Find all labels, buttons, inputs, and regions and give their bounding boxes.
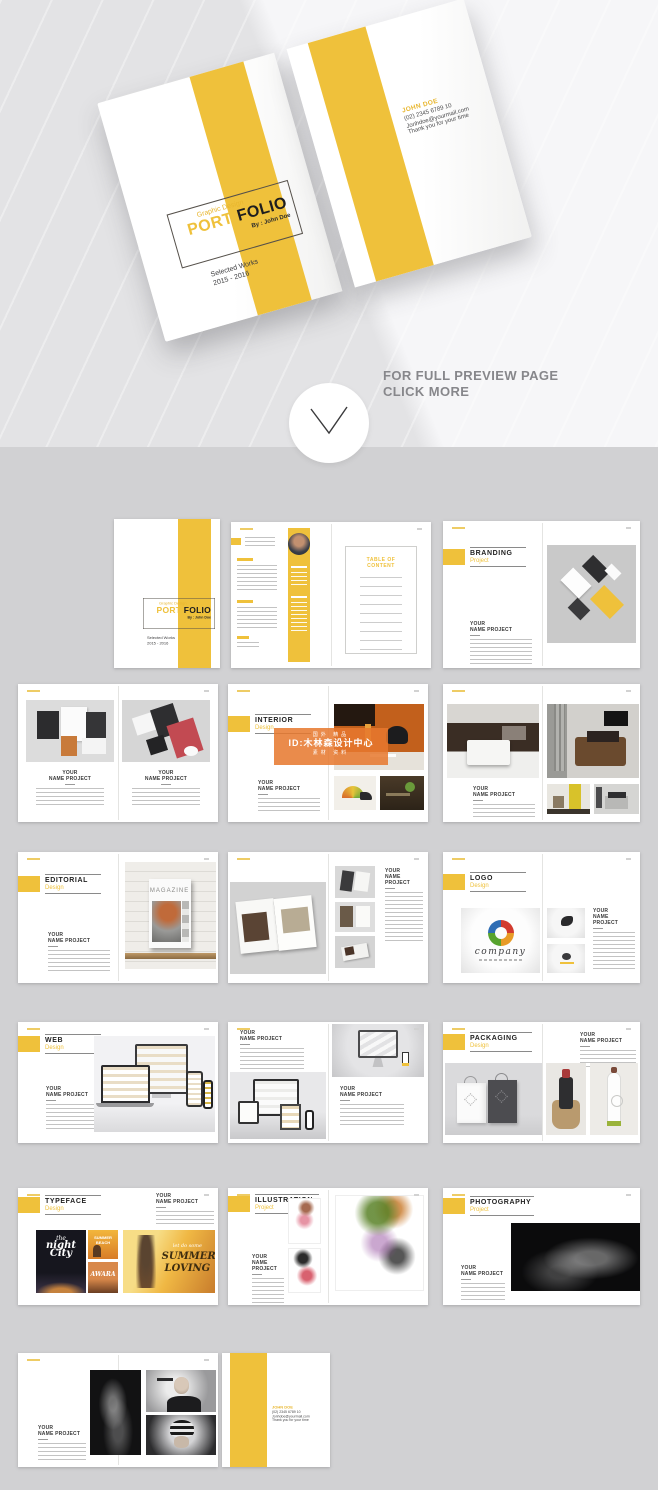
heading-text-wrap: WEB Design — [45, 1034, 101, 1054]
magazine-sidebar — [182, 901, 189, 942]
mini-cover-title-box: Graphic Design PORT FOLIO By : John Doe — [143, 598, 215, 629]
heading-text-wrap: BRANDING Project — [470, 547, 526, 567]
photo-bw-man-gun — [146, 1370, 216, 1412]
np-line2: NAME PROJECT — [132, 776, 200, 782]
section-subtitle: Project — [470, 558, 526, 564]
np-divider — [593, 928, 603, 929]
photo-bedroom-dark — [447, 704, 539, 778]
preview-line1: FOR FULL PREVIEW PAGE — [383, 368, 558, 383]
spread-fold — [328, 1024, 329, 1141]
photo-shape — [93, 1245, 101, 1257]
section-subtitle: Design — [470, 1043, 532, 1049]
photo-shape — [605, 796, 628, 809]
phone-shape — [203, 1080, 213, 1109]
np-line2: NAME PROJECT — [252, 1260, 284, 1272]
np-divider — [580, 1046, 590, 1047]
section-title: PHOTOGRAPHY — [470, 1199, 534, 1206]
resume-section-head-3 — [237, 636, 249, 639]
photo-shape — [568, 598, 591, 621]
spread-fold — [331, 524, 332, 666]
hiker-silhouette-shape — [136, 1235, 156, 1288]
imac-screen-shape — [358, 1030, 398, 1058]
np-divider — [65, 784, 75, 785]
thumb-typeface-spread: TYPEFACE Design YOUR NAME PROJECT the ni… — [18, 1188, 218, 1305]
heading-text-wrap: LOGO Design — [470, 872, 526, 892]
photo-shape — [242, 912, 270, 942]
mini-cover-works1: Selected Works — [147, 636, 175, 641]
mini-cover-port: PORT — [157, 606, 182, 616]
magazine-cover: MAGAZINE — [149, 879, 191, 947]
photo-shape — [402, 1063, 409, 1066]
heading-yellow-tab — [18, 876, 40, 892]
thumb-interior-spread: INTERIOR Design YOUR NAME PROJECT 国外 精品 … — [228, 684, 428, 822]
photo-shape — [405, 782, 415, 792]
np-line2: NAME PROJECT — [258, 786, 320, 792]
photo-company-logo: company — [461, 908, 540, 973]
photo-shape — [174, 1436, 189, 1448]
chevron-down-icon — [289, 383, 369, 463]
browser-card-shape — [280, 1104, 301, 1129]
section-title: INTERIOR — [255, 717, 311, 724]
photo-shape — [467, 740, 509, 765]
spread-fold — [542, 854, 543, 981]
np-line2: NAME PROJECT — [156, 1199, 214, 1205]
resume-text-lines-1 — [237, 565, 277, 593]
photo-branding-stationery — [547, 545, 636, 643]
photo-bottle — [590, 1063, 638, 1135]
photo-shape — [61, 736, 77, 756]
photo-magazine-on-shelf: MAGAZINE — [125, 862, 216, 969]
toc-item-lines — [360, 577, 402, 651]
imac-stand-shape — [372, 1058, 383, 1068]
photo-open-catalog — [230, 882, 326, 974]
photo-shape — [354, 871, 370, 891]
section-subtitle: Design — [45, 1206, 101, 1212]
section-subtitle: Design — [470, 883, 526, 889]
laptop-screen-shape — [101, 1065, 149, 1103]
photo-jar-burlap — [546, 1063, 586, 1135]
photo-bedroom-gray — [594, 784, 639, 814]
name-project-block: YOUR NAME PROJECT — [240, 1030, 304, 1072]
photo-shape — [562, 953, 571, 960]
illustration-small-2 — [288, 1248, 321, 1293]
resume-section-head-1 — [237, 558, 253, 561]
mini-back-art: JOHN DOE (02) 2345 6789 10 Jonhdoe@yourm… — [222, 1353, 330, 1467]
heading-yellow-tab — [18, 1036, 40, 1052]
name-project-block: YOUR NAME PROJECT — [258, 780, 320, 814]
bottle-base-shape — [607, 1121, 620, 1126]
photo-shape — [386, 793, 410, 796]
photo-shape — [340, 906, 354, 927]
photo-shape — [174, 1377, 189, 1394]
photo-shape — [502, 726, 526, 739]
np-line2: NAME PROJECT — [240, 1036, 304, 1042]
mini-back-contact: JOHN DOE (02) 2345 6789 10 Jonhdoe@yourm… — [272, 1405, 326, 1422]
photo-logo-small-2 — [547, 944, 585, 973]
heading-text-wrap: EDITORIAL Design — [45, 874, 101, 894]
np-paragraph — [258, 798, 320, 814]
mini-cover-works2: 2015 - 2016 — [147, 641, 168, 646]
resume-name-lines — [245, 537, 275, 547]
photo-shape — [604, 563, 621, 580]
section-subtitle: Design — [45, 885, 101, 891]
name-project-block: YOUR NAME PROJECT — [38, 1425, 86, 1463]
jar-lid-shape — [562, 1069, 570, 1078]
phone-shape — [305, 1110, 314, 1130]
magazine-title: MAGAZINE — [149, 888, 191, 894]
name-project-block: YOUR NAME PROJECT — [340, 1086, 404, 1128]
np-paragraph — [48, 950, 110, 972]
photo-bw-silhouette — [90, 1370, 141, 1455]
mini-cover-byline: By : John Doe — [147, 616, 211, 620]
avatar — [288, 533, 310, 555]
photo-shape — [608, 792, 626, 797]
watermark-bottom: 素材 资料 — [274, 749, 388, 756]
np-paragraph — [240, 1048, 304, 1072]
illustration-small-1 — [288, 1198, 321, 1244]
np-divider — [48, 946, 58, 947]
heading-yellow-tab — [443, 549, 465, 565]
photo-shape — [157, 1378, 172, 1381]
mini-back-stripe — [230, 1353, 267, 1467]
thumb-editorial-mockups-spread: YOUR NAME PROJECT — [228, 852, 428, 983]
thumb-editorial-spread: EDITORIAL Design YOUR NAME PROJECT MAGAZ… — [18, 852, 218, 983]
np-line2: NAME PROJECT — [461, 1271, 505, 1277]
thumb-back-cover-page: JOHN DOE (02) 2345 6789 10 Jonhdoe@yourm… — [222, 1353, 330, 1467]
toc-title: TABLE OF CONTENT — [358, 557, 404, 569]
np-line2: NAME PROJECT — [36, 776, 104, 782]
stripe-heading-1 — [291, 566, 307, 568]
resume-text-lines-2 — [237, 607, 277, 631]
np-paragraph — [385, 892, 423, 944]
heading-yellow-tab — [443, 874, 465, 890]
photo-brochure-small-2 — [335, 902, 375, 932]
np-line2: NAME PROJECT — [385, 874, 423, 886]
bottle-logo-shape — [611, 1095, 623, 1107]
np-paragraph — [38, 1443, 86, 1463]
heading-yellow-tab — [443, 1198, 465, 1214]
spread-fold — [328, 1190, 329, 1303]
watermark-top: 国外 精品 — [274, 731, 388, 738]
hero-marble-scene: Graphic Design PORT FOLIO By : John Doe … — [0, 0, 658, 447]
np-line2: NAME PROJECT — [48, 938, 110, 944]
photo-shape — [560, 568, 591, 599]
heading-yellow-tab — [228, 1196, 250, 1212]
watermark-id: ID:木林森设计中心 — [274, 738, 388, 749]
photo-bw-figure — [511, 1223, 640, 1291]
laptop-base-shape — [96, 1103, 154, 1107]
section-subtitle: Project — [470, 1207, 534, 1213]
np-divider — [38, 1439, 48, 1440]
thumb-packaging-spread: PACKAGING Design YOUR NAME PROJECT — [443, 1022, 640, 1143]
mini-cover-works: Selected Works 2015 - 2016 — [147, 635, 175, 646]
monitor-stand-shape — [152, 1094, 171, 1099]
photo-shape — [386, 726, 408, 744]
photo-shape — [345, 946, 355, 956]
np-line2: NAME PROJECT — [473, 792, 535, 798]
np-paragraph — [461, 1283, 505, 1301]
thumb-interior-bedrooms-spread: YOUR NAME PROJECT — [443, 684, 640, 822]
poster-awara-text: AWARA — [88, 1271, 118, 1278]
summer-kicker-text: let do some — [163, 1243, 211, 1249]
section-title: EDITORIAL — [45, 877, 101, 884]
portfolio-template-preview: { "hero": { "preview": { "line1": "FOR F… — [0, 0, 658, 1490]
photo-shape — [281, 906, 310, 933]
photo-stationery-red — [122, 700, 210, 762]
np-paragraph — [252, 1278, 284, 1304]
np-divider — [340, 1100, 350, 1101]
photo-responsive-devices — [94, 1036, 215, 1132]
np-paragraph — [132, 788, 200, 806]
company-tagline-lines — [479, 959, 523, 961]
jar-shape — [559, 1077, 573, 1109]
photo-shape — [587, 731, 618, 743]
np-paragraph — [156, 1211, 214, 1227]
heading-text-wrap: TYPEFACE Design — [45, 1195, 101, 1215]
photo-shape — [554, 704, 565, 771]
photo-room-yellow — [547, 784, 590, 814]
photo-bedroom-brown — [547, 704, 639, 778]
np-line2: NAME PROJECT — [580, 1038, 636, 1044]
thumb-web-mockups-spread: YOUR NAME PROJECT YOUR NAME PROJECT — [228, 1022, 428, 1143]
stripe-lines-1 — [291, 572, 307, 588]
np-divider — [461, 1279, 471, 1280]
np-divider — [470, 635, 480, 636]
np-paragraph — [340, 1104, 404, 1128]
photo-shape — [360, 792, 372, 800]
section-subtitle: Design — [45, 1045, 101, 1051]
photo-interior-fan-chair — [334, 776, 376, 810]
photo-shape — [170, 1420, 194, 1437]
heading-yellow-tab — [18, 1197, 40, 1213]
np-divider — [385, 888, 395, 889]
brochure-mockup: Graphic Design PORT FOLIO By : John Doe … — [97, 0, 533, 342]
resume-name-tab — [231, 538, 241, 545]
spread-fold — [542, 686, 543, 820]
photo-shape — [561, 916, 573, 926]
name-project-block: YOUR NAME PROJECT — [461, 1265, 505, 1301]
np-paragraph — [473, 804, 535, 820]
company-wordmark: company — [461, 947, 540, 957]
photo-imac — [332, 1024, 424, 1077]
watermark-overlay: 国外 精品 ID:木林森设计中心 素材 资料 — [274, 728, 388, 765]
heading-text-wrap: PACKAGING Design — [470, 1032, 532, 1052]
photo-web-devices-2 — [230, 1072, 326, 1139]
back-contact-block: JOHN DOE (02) 2345 6789 10 Jonhdoe@yourm… — [401, 85, 490, 136]
section-title: BRANDING — [470, 550, 526, 557]
contact-name: JOHN DOE — [272, 1405, 326, 1410]
poster-summer-beach: SUMMER BEACH — [88, 1230, 118, 1259]
thumb-resume-toc-spread: TABLE OF CONTENT — [231, 522, 431, 668]
np-divider — [258, 794, 268, 795]
name-project-block: YOUR NAME PROJECT — [156, 1193, 214, 1227]
photo-shape — [167, 1396, 201, 1412]
thumb-photography-spread: PHOTOGRAPHY Project YOUR NAME PROJECT — [443, 1188, 640, 1305]
thumb-branding-mockups-spread: YOUR NAME PROJECT YOUR NAME PROJECT — [18, 684, 218, 822]
thumb-branding-spread: BRANDING Project YOUR NAME PROJECT — [443, 521, 640, 668]
summer-title-text: SUMMER LOVING — [162, 1251, 214, 1275]
resume-section-head-2 — [237, 600, 253, 603]
thumb-cover-page: Graphic Design PORT FOLIO By : John Doe … — [114, 519, 220, 668]
tablet-shape — [186, 1071, 203, 1107]
np-line2: NAME PROJECT — [340, 1092, 404, 1098]
night-city: City — [50, 1248, 72, 1259]
name-project-block: YOUR NAME PROJECT — [473, 786, 535, 820]
np-divider — [473, 800, 483, 801]
np-line2: NAME PROJECT — [470, 627, 532, 633]
preview-line2: CLICK MORE — [383, 384, 469, 399]
np-divider — [240, 1044, 250, 1045]
spread-fold — [118, 686, 119, 820]
bottle-cap-shape — [611, 1067, 618, 1073]
photo-shape — [184, 746, 198, 756]
heading-yellow-tab — [443, 1034, 465, 1050]
mini-cover-folio: FOLIO — [184, 606, 211, 616]
photo-shape — [36, 1282, 86, 1293]
toc-box: TABLE OF CONTENT — [345, 546, 417, 654]
np-divider — [252, 1274, 262, 1275]
photo-stationery-orange — [26, 700, 114, 762]
section-title: WEB — [45, 1037, 101, 1044]
spread-fold — [542, 523, 543, 666]
stripe-heading-2 — [291, 596, 307, 598]
poster-awara: AWARA — [88, 1262, 118, 1293]
magazine-photo — [152, 901, 180, 942]
illustration-large — [335, 1195, 424, 1291]
photo-bw-striped-hat — [146, 1415, 216, 1455]
tablet-shape — [238, 1101, 259, 1124]
contact-phone: (02) 2345 6789 10 — [272, 1411, 326, 1415]
pinwheel-center — [495, 927, 507, 939]
stripe-lines-2 — [291, 602, 307, 634]
photo-shape — [590, 585, 624, 619]
photo-shape — [82, 738, 106, 754]
np-paragraph — [470, 639, 532, 665]
photo-logo-small-1 — [547, 908, 585, 938]
mini-cover-title: PORT FOLIO — [147, 606, 211, 616]
poster-beach-text: SUMMER BEACH — [88, 1235, 118, 1245]
name-project-block: YOUR NAME PROJECT — [470, 621, 532, 665]
photo-shape — [340, 870, 355, 892]
caption-name-project: YOUR NAME PROJECT — [132, 770, 200, 806]
thumb-illustration-spread: ILLUSTRATION Project YOUR NAME PROJECT — [228, 1188, 428, 1305]
photo-shape — [146, 735, 168, 756]
np-divider — [156, 1207, 166, 1208]
contact-thanks: Thank you for your time — [272, 1419, 326, 1423]
np-divider — [46, 1100, 56, 1101]
photo-shape — [569, 784, 580, 809]
photo-brochure-small-1 — [335, 866, 375, 898]
mini-cover-art: Graphic Design PORT FOLIO By : John Doe … — [114, 519, 220, 668]
photo-interior-shelf — [380, 776, 424, 810]
photo-shopping-bags — [445, 1063, 542, 1135]
photo-brochure-small-3 — [335, 936, 375, 968]
photo-shape — [37, 711, 59, 739]
poster-night-city: the night City — [36, 1230, 86, 1293]
poster-night-text: the night City — [40, 1235, 82, 1258]
heading-text-wrap: PHOTOGRAPHY Project — [470, 1196, 534, 1216]
resume-text-lines-3 — [237, 642, 259, 649]
thumb-bw-photos-spread: YOUR NAME PROJECT — [18, 1353, 218, 1467]
summer-line1: SUMMER — [162, 1251, 215, 1262]
summer-line2: LOVING — [165, 1263, 211, 1274]
np-line2: NAME PROJECT — [38, 1431, 86, 1437]
photo-shape — [356, 906, 370, 927]
section-title: LOGO — [470, 875, 526, 882]
mini-cover-stripe — [178, 519, 211, 668]
shelf-shape — [125, 953, 216, 959]
photo-shape — [604, 711, 628, 726]
np-line2: NAME PROJECT — [593, 914, 635, 926]
preview-call-to-action: FOR FULL PREVIEW PAGE CLICK MORE — [383, 368, 558, 400]
section-title: TYPEFACE — [45, 1198, 101, 1205]
photo-shape — [560, 962, 574, 964]
thumb-web-spread: WEB Design YOUR NAME PROJECT — [18, 1022, 218, 1143]
photo-shape — [553, 796, 564, 808]
np-paragraph — [593, 932, 635, 972]
name-project-block: YOUR NAME PROJECT — [252, 1254, 284, 1304]
np-divider — [161, 784, 171, 785]
caption-name-project: YOUR NAME PROJECT — [36, 770, 104, 806]
heading-yellow-tab — [228, 716, 250, 732]
spread-fold — [118, 854, 119, 981]
photo-shape — [596, 787, 602, 808]
section-title: PACKAGING — [470, 1035, 532, 1042]
thumb-logo-spread: LOGO Design company YOUR NAME PROJECT — [443, 852, 640, 983]
name-project-block: YOUR NAME PROJECT — [593, 908, 635, 972]
name-project-block: YOUR NAME PROJECT — [385, 868, 423, 944]
photo-shape — [547, 809, 590, 814]
scroll-down-button[interactable] — [289, 383, 369, 463]
poster-summer-loving: let do some SUMMER LOVING — [123, 1230, 215, 1293]
np-paragraph — [36, 788, 104, 806]
name-project-block: YOUR NAME PROJECT — [48, 932, 110, 972]
spread-fold — [328, 854, 329, 981]
